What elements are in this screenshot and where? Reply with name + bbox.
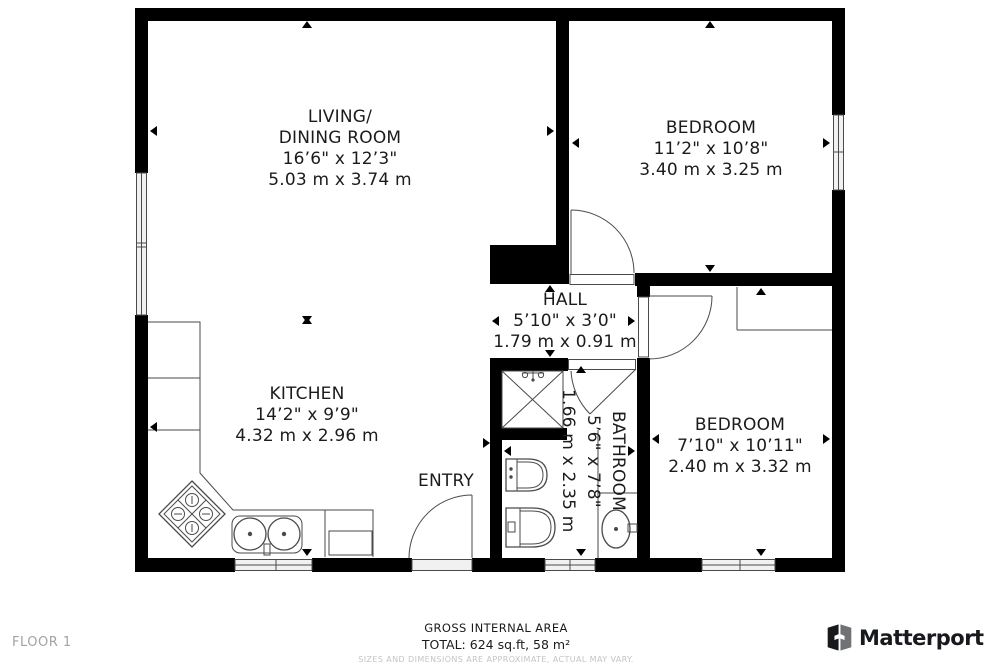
door-entry — [409, 495, 472, 558]
label-bedroom-top: BEDROOM 11’2" x 10’8" 3.40 m x 3.25 m — [639, 118, 783, 181]
room-name: BEDROOM — [639, 118, 783, 139]
area-disclaimer: SIZES AND DIMENSIONS ARE APPROXIMATE, AC… — [358, 655, 633, 664]
room-dims-metric: 1.66 m x 2.35 m — [555, 366, 580, 556]
label-bathroom: BATHROOM 5’6" x 7’8" 1.66 m x 2.35 m — [552, 366, 630, 556]
room-name: DINING ROOM — [268, 128, 412, 149]
room-name: BEDROOM — [668, 415, 812, 436]
label-kitchen: KITCHEN 14’2" x 9’9" 4.32 m x 2.96 m — [235, 384, 379, 447]
label-hall: HALL 5’10" x 3’0" 1.79 m x 0.91 m — [493, 290, 637, 353]
kitchen-sink — [232, 516, 302, 555]
room-name: BATHROOM — [605, 366, 630, 556]
matterport-logo: Matterport — [826, 624, 984, 651]
room-name: HALL — [493, 290, 637, 311]
room-dims-imperial: 7’10" x 10’11" — [668, 436, 812, 457]
room-dims-imperial: 14’2" x 9’9" — [235, 405, 379, 426]
room-dims-imperial: 5’6" x 7’8" — [580, 366, 605, 556]
room-dims-metric: 2.40 m x 3.32 m — [668, 457, 812, 478]
room-dims-metric: 4.32 m x 2.96 m — [235, 426, 379, 447]
room-name: KITCHEN — [235, 384, 379, 405]
room-dims-imperial: 11’2" x 10’8" — [639, 139, 783, 160]
window-living-left — [137, 173, 147, 315]
door-bedroom-top — [571, 210, 634, 274]
room-dims-metric: 5.03 m x 3.74 m — [268, 170, 412, 191]
room-dims-imperial: 16’6" x 12’3" — [268, 149, 412, 170]
area-title: GROSS INTERNAL AREA — [358, 621, 633, 635]
floor-label: FLOOR 1 — [12, 635, 72, 650]
toilet-large — [506, 508, 555, 547]
toilet-small — [506, 459, 547, 491]
room-dims-metric: 3.40 m x 3.25 m — [639, 160, 783, 181]
room-dims-imperial: 5’10" x 3’0" — [493, 311, 637, 332]
matterport-icon — [826, 624, 853, 651]
room-dims-metric: 1.79 m x 0.91 m — [493, 332, 637, 353]
window-kitchen-bottom — [235, 560, 312, 571]
matterport-wordmark: Matterport — [859, 626, 984, 650]
closet-bedroom-bottom — [737, 287, 832, 330]
label-entry: ENTRY — [418, 471, 474, 492]
gross-internal-area: GROSS INTERNAL AREA TOTAL: 624 sq.ft, 58… — [358, 621, 633, 664]
label-living-dining: LIVING/ DINING ROOM 16’6" x 12’3" 5.03 m… — [268, 107, 412, 191]
door-bedroom-bottom — [649, 296, 712, 359]
window-bathroom-bottom — [545, 560, 595, 571]
window-bedroom-bottom — [702, 560, 775, 571]
room-name: LIVING/ — [268, 107, 412, 128]
stove — [159, 481, 225, 547]
label-bedroom-bottom: BEDROOM 7’10" x 10’11" 2.40 m x 3.32 m — [668, 415, 812, 478]
window-bedroom-top-right — [834, 115, 844, 190]
area-total: TOTAL: 624 sq.ft, 58 m² — [358, 637, 633, 652]
room-name: ENTRY — [418, 471, 474, 492]
floorplan-page: LIVING/ DINING ROOM 16’6" x 12’3" 5.03 m… — [0, 0, 992, 664]
